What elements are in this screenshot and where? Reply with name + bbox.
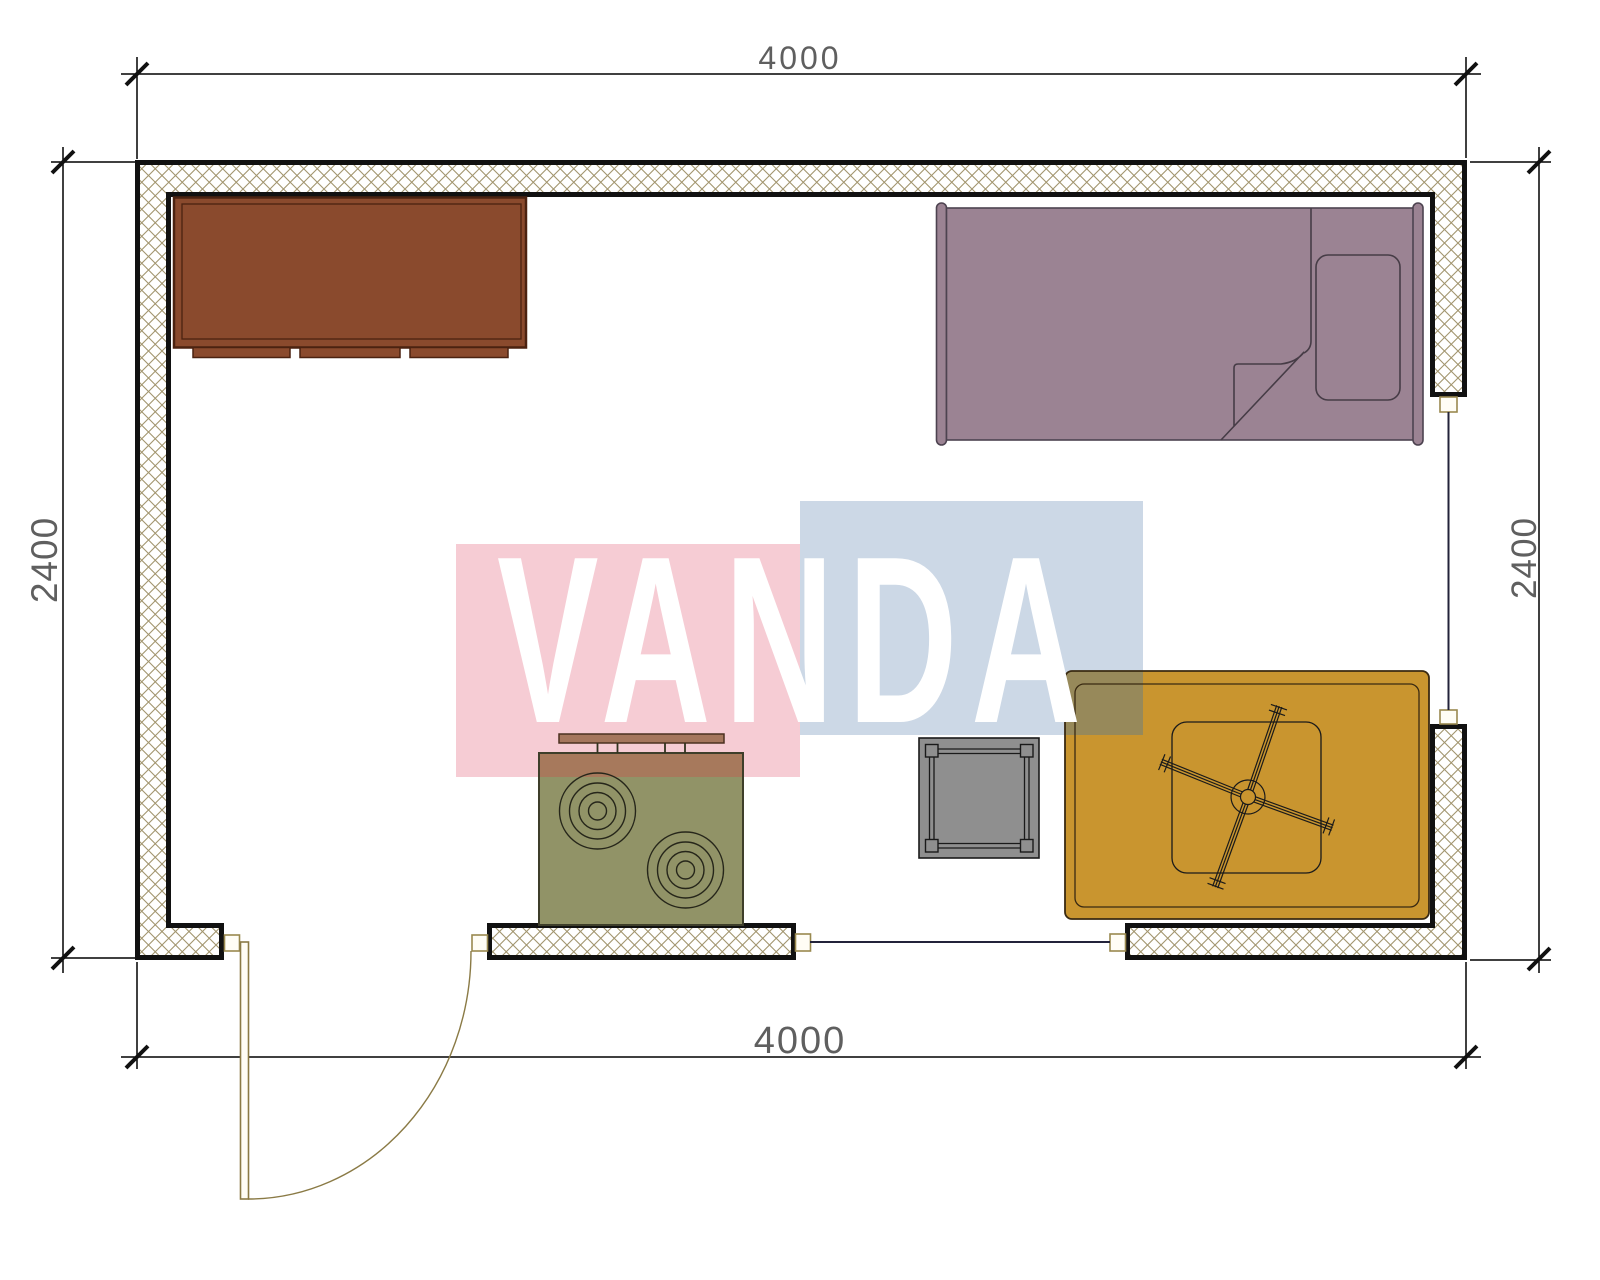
svg-text:4000: 4000: [754, 1020, 847, 1062]
svg-text:2400: 2400: [1505, 517, 1544, 599]
svg-text:VANDA: VANDA: [497, 508, 1094, 774]
svg-text:4000: 4000: [758, 40, 841, 76]
svg-text:2400: 2400: [24, 517, 65, 603]
